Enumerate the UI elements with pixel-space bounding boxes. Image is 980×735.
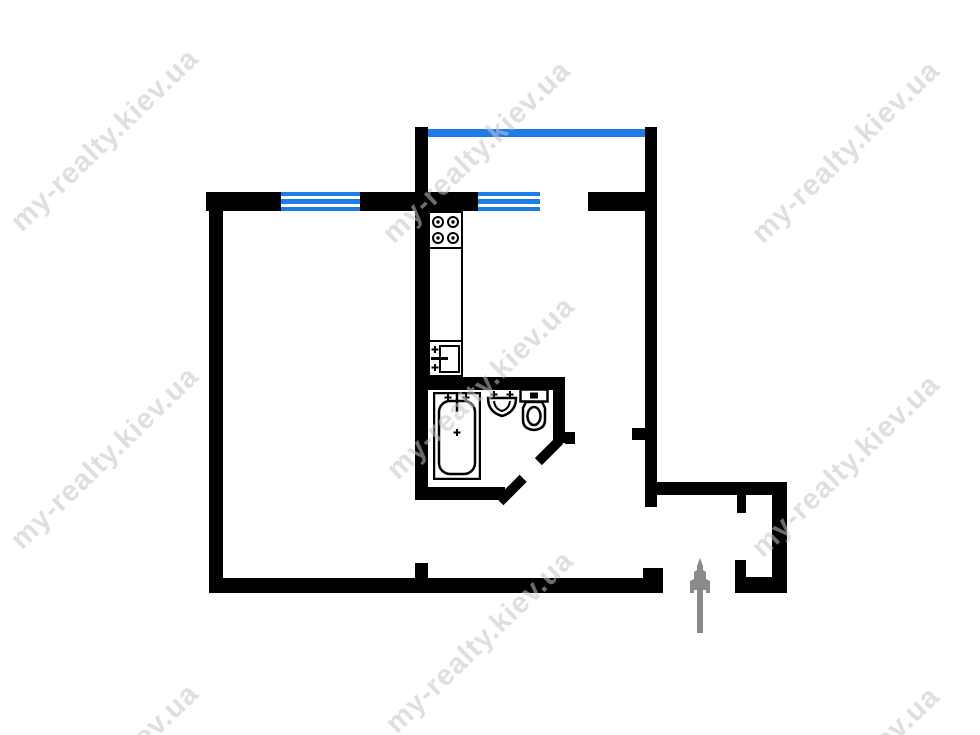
wall-top-left-b bbox=[360, 192, 416, 211]
wall-vestibule-bottom bbox=[735, 577, 787, 593]
watermark-text: my-realty.kiev.ua bbox=[380, 544, 581, 735]
wall-bathroom-right bbox=[553, 377, 565, 443]
watermark-text: my-realty.kiev.ua bbox=[746, 54, 947, 250]
wall-vestibule-top bbox=[645, 482, 787, 495]
watermark-text: my-realty.kiev.ua bbox=[377, 54, 578, 250]
bathtub-icon bbox=[433, 392, 481, 480]
watermark-text: my-realty.kiev.ua bbox=[5, 42, 206, 238]
door-jamb-vestibule-top bbox=[737, 495, 746, 513]
door-jamb-bottom-middle bbox=[415, 563, 428, 578]
door-jamb-bottom-right bbox=[643, 568, 663, 578]
wall-bathroom-bottom bbox=[415, 487, 505, 500]
door-jamb-bathroom bbox=[565, 432, 575, 444]
kitchen-window bbox=[478, 192, 540, 211]
door-jamb-right-wall bbox=[632, 428, 645, 440]
watermark-text: my-realty.kiev.ua bbox=[746, 680, 947, 735]
watermark-text: my-realty.kiev.ua bbox=[5, 677, 206, 735]
kitchen-sink-icon bbox=[428, 340, 463, 377]
entry-arrow-icon bbox=[684, 552, 716, 636]
wall-bottom bbox=[209, 578, 663, 593]
stove-icon bbox=[428, 211, 463, 249]
washbasin-icon bbox=[485, 390, 519, 421]
hall-door-swing bbox=[535, 437, 563, 465]
door-jamb-vestibule-bottom bbox=[735, 560, 746, 577]
watermark-text: my-realty.kiev.ua bbox=[5, 360, 206, 556]
wall-kitchen-top-a bbox=[428, 192, 478, 211]
wall-middle-vertical bbox=[415, 127, 428, 500]
wall-kitchen-top-b bbox=[588, 192, 645, 211]
balcony-glazing bbox=[428, 129, 645, 137]
wall-left bbox=[209, 192, 223, 593]
wall-right bbox=[645, 127, 657, 507]
living-room-window bbox=[281, 192, 360, 211]
toilet-icon bbox=[519, 388, 549, 434]
floor-plan: my-realty.kiev.ua my-realty.kiev.ua my-r… bbox=[0, 0, 980, 735]
wall-top-left-a bbox=[206, 192, 281, 211]
